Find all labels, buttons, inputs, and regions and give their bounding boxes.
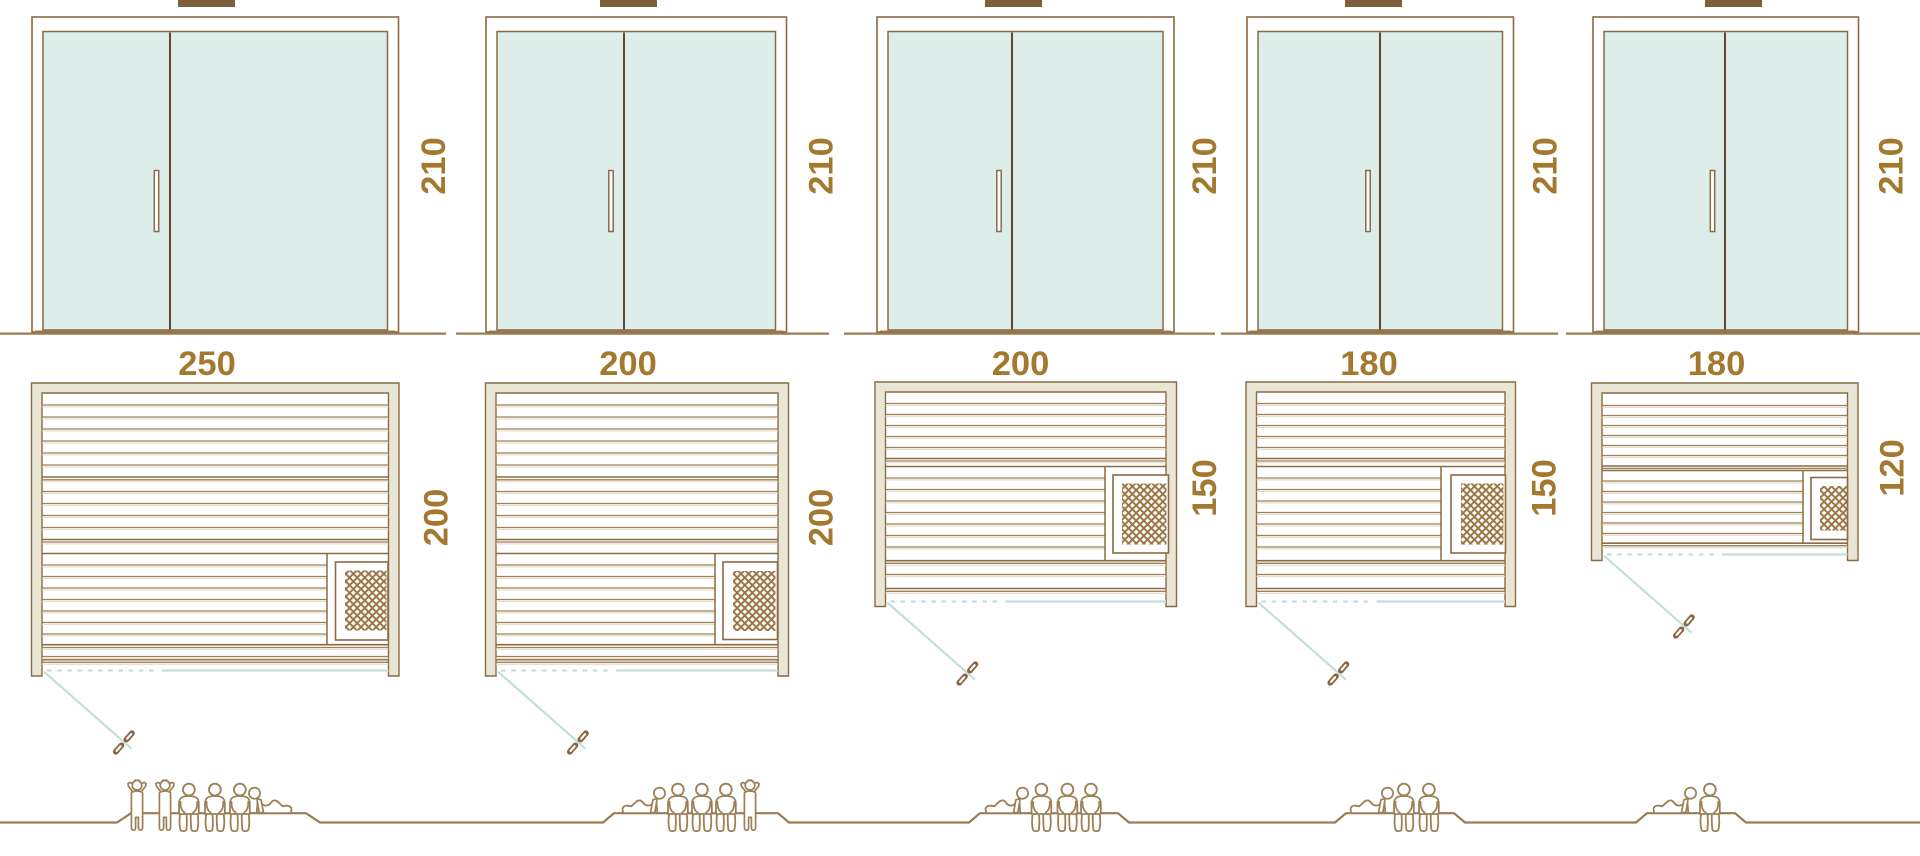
svg-text:120: 120 — [1874, 439, 1912, 497]
svg-text:210: 210 — [803, 137, 841, 195]
svg-text:210: 210 — [415, 137, 453, 195]
svg-text:150: 150 — [1526, 459, 1564, 517]
svg-text:180: 180 — [1688, 345, 1746, 383]
svg-text:210: 210 — [1186, 137, 1224, 195]
svg-text:200: 200 — [418, 489, 456, 547]
svg-text:210: 210 — [1873, 137, 1911, 195]
svg-text:200: 200 — [599, 345, 657, 383]
svg-text:200: 200 — [803, 489, 841, 547]
svg-text:150: 150 — [1186, 459, 1224, 517]
svg-text:210: 210 — [1527, 137, 1565, 195]
svg-text:200: 200 — [992, 345, 1050, 383]
svg-text:250: 250 — [178, 345, 236, 383]
svg-text:180: 180 — [1340, 345, 1398, 383]
